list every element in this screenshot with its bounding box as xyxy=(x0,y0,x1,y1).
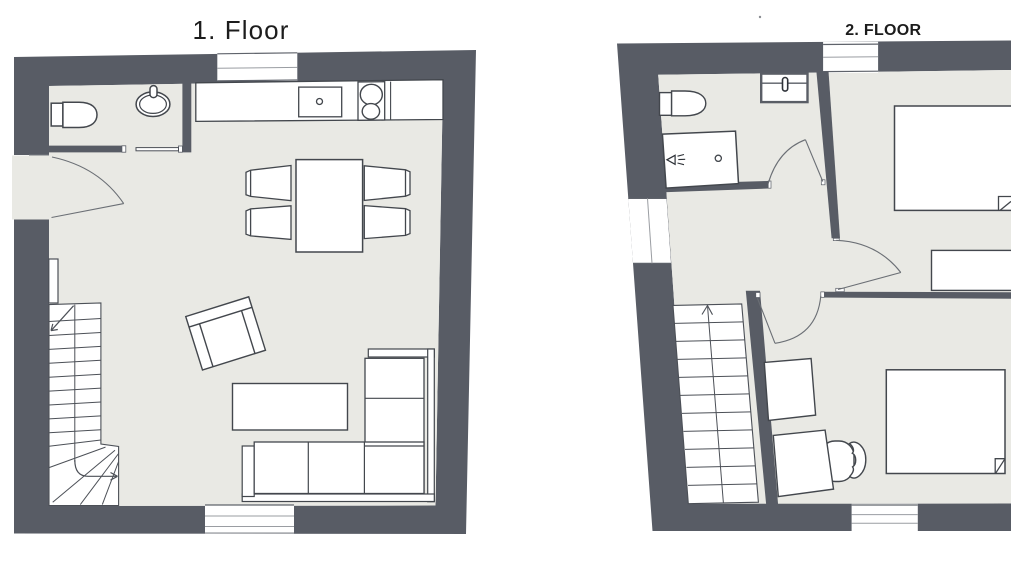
svg-text:1. Floor: 1. Floor xyxy=(193,15,290,45)
svg-text:2. FLOOR: 2. FLOOR xyxy=(845,22,921,39)
